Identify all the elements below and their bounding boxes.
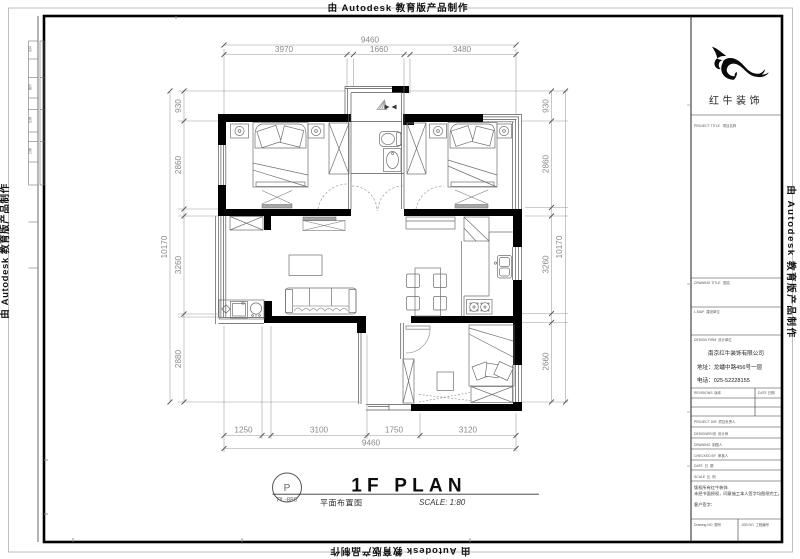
svg-text:P: P — [284, 483, 291, 494]
svg-text:3260: 3260 — [542, 255, 551, 274]
svg-text:电话：025-52228155: 电话：025-52228155 — [697, 376, 750, 384]
svg-text:1F PLAN: 1F PLAN — [351, 476, 467, 497]
svg-text:PL-888: PL-888 — [277, 497, 298, 504]
svg-text:1250: 1250 — [234, 426, 253, 435]
svg-text:9460: 9460 — [362, 439, 381, 448]
svg-text:2860: 2860 — [174, 155, 183, 174]
svg-text:比例: 比例 — [27, 117, 32, 123]
svg-text:DRAWING 制图人: DRAWING 制图人 — [694, 442, 723, 447]
svg-text:3480: 3480 — [453, 45, 472, 54]
svg-text:SCALE: 1:80: SCALE: 1:80 — [419, 498, 466, 507]
svg-text:REVISIONS 版本: REVISIONS 版本 — [694, 390, 722, 395]
svg-text:南京红牛装饰有限公司: 南京红牛装饰有限公司 — [708, 349, 764, 357]
svg-text:版权所有红牛装饰: 版权所有红牛装饰 — [694, 484, 728, 491]
svg-text:L-MAP 建设单位: L-MAP 建设单位 — [694, 309, 720, 314]
svg-text:Drawing NO 图号: Drawing NO 图号 — [694, 522, 722, 527]
svg-text:日期: 日期 — [27, 148, 32, 154]
svg-text:PROJECT DIR 项目负责人: PROJECT DIR 项目负责人 — [694, 419, 736, 424]
svg-text:DATE 日 期: DATE 日 期 — [694, 463, 714, 468]
svg-text:客户签字：: 客户签字： — [694, 501, 715, 508]
svg-text:JOB NO 工程编号: JOB NO 工程编号 — [741, 522, 770, 527]
svg-text:地址：龙蟠中路456号一层: 地址：龙蟠中路456号一层 — [697, 363, 763, 371]
svg-text:未经书面授权，同意施工本人签字均图纸完工。: 未经书面授权，同意施工本人签字均图纸完工。 — [694, 490, 782, 497]
svg-text:2880: 2880 — [174, 349, 183, 368]
svg-text:图号: 图号 — [27, 84, 32, 90]
svg-text:DESIGN FIRM 设计单位: DESIGN FIRM 设计单位 — [694, 337, 732, 342]
svg-text:由 Autodesk 教育版产品制作: 由 Autodesk 教育版产品制作 — [785, 185, 797, 338]
svg-text:10170: 10170 — [160, 235, 169, 258]
svg-text:1750: 1750 — [385, 426, 404, 435]
svg-text:2660: 2660 — [542, 352, 551, 371]
svg-text:10170: 10170 — [555, 235, 564, 258]
svg-text:由 Autodesk 教育版产品制作: 由 Autodesk 教育版产品制作 — [328, 2, 469, 14]
svg-text:由 Autodesk 教育版产品制作: 由 Autodesk 教育版产品制作 — [0, 183, 11, 318]
svg-text:3970: 3970 — [275, 45, 294, 54]
svg-text:CHECKED BY 审核人: CHECKED BY 审核人 — [694, 453, 729, 458]
svg-text:9460: 9460 — [361, 36, 380, 45]
svg-text:名称: 名称 — [27, 46, 32, 52]
svg-text:DESIGNER/设 设计师: DESIGNER/设 设计师 — [694, 431, 729, 436]
svg-text:930: 930 — [542, 99, 551, 113]
svg-text:930: 930 — [174, 99, 183, 113]
svg-text:SCALE 比 例: SCALE 比 例 — [694, 474, 716, 479]
svg-text:3100: 3100 — [310, 426, 329, 435]
svg-text:红牛装饰: 红牛装饰 — [709, 94, 763, 107]
svg-text:1660: 1660 — [370, 45, 389, 54]
svg-text:DATE 日期: DATE 日期 — [758, 390, 775, 395]
svg-text:DRAWING TITLE 图名: DRAWING TITLE 图名 — [694, 280, 730, 285]
svg-text:3120: 3120 — [459, 426, 478, 435]
svg-text:平面布置图: 平面布置图 — [320, 498, 363, 508]
svg-text:3260: 3260 — [174, 255, 183, 274]
svg-text:PROJECT TITLE 项目名称: PROJECT TITLE 项目名称 — [694, 123, 737, 128]
svg-text:由 Autodesk 教育版产品制作: 由 Autodesk 教育版产品制作 — [330, 545, 471, 557]
svg-text:2860: 2860 — [542, 154, 551, 173]
